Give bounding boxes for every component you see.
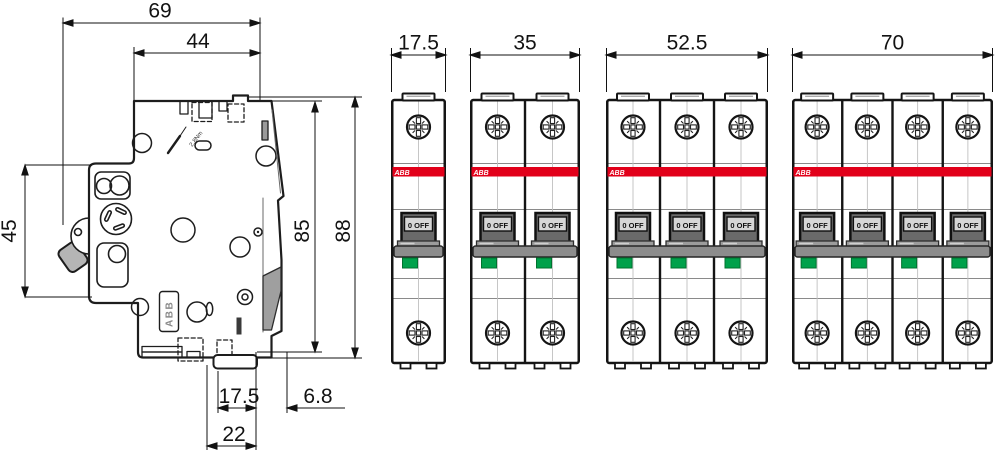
toggle-switch[interactable]: 0 OFF [846, 213, 888, 249]
dimension-label: 35 [513, 32, 536, 55]
terminal-screw [730, 116, 753, 139]
screw-slot [422, 125, 428, 129]
screw-slot [678, 331, 684, 335]
toggle-switch[interactable]: 0 OFF [532, 213, 574, 249]
terminal-screw [622, 116, 645, 139]
toggle-switch[interactable]: 0 OFF [477, 213, 519, 249]
screw-slot [959, 331, 965, 335]
breaker-front-1pole: 17.5ABB0 OFF [391, 32, 446, 369]
bottom-foot [976, 363, 986, 369]
toggle-state-label: 0 OFF [857, 221, 879, 230]
screw-slot [685, 331, 689, 335]
dim-unit-width: 35 [470, 32, 580, 93]
bottom-foot [875, 363, 885, 369]
toggle-switch[interactable]: 0 OFF [897, 213, 939, 249]
terminal-screw [486, 116, 509, 139]
side-view-drawing: 2.8Nm ABB [57, 96, 284, 369]
screw-slot [488, 125, 494, 129]
screw-slot [971, 331, 977, 335]
top-mounting-tab [617, 94, 649, 101]
toggle-state-label: 0 OFF [957, 221, 979, 230]
toggle-switch[interactable]: 0 OFF [398, 213, 440, 249]
screw-slot [543, 125, 549, 129]
screw-slot [550, 125, 554, 129]
bottom-foot [401, 363, 411, 369]
top-mounting-tab [902, 94, 934, 101]
dimension-label: 70 [881, 32, 904, 55]
screw-slot [685, 125, 689, 129]
screw-slot [501, 125, 507, 129]
screw-slot [631, 331, 635, 335]
screw-slot [739, 131, 743, 137]
top-mounting-tab [952, 94, 984, 101]
screw-slot [685, 337, 689, 343]
screw-slot [543, 331, 549, 335]
screw-slot [416, 337, 420, 343]
status-indicator [482, 258, 497, 268]
screw-slot [631, 118, 635, 124]
screw-slot [550, 324, 554, 330]
screw-slot [739, 331, 743, 335]
din-clip-tab [214, 355, 258, 369]
terminal-screw [541, 322, 564, 345]
screw-slot [550, 331, 554, 335]
screw-slot [624, 331, 630, 335]
status-indicator [952, 258, 967, 268]
dim-upper-width: 44 [134, 30, 260, 100]
toggle-switch[interactable]: 0 OFF [796, 213, 838, 249]
screw-slot [916, 118, 920, 124]
screw-slot [739, 324, 743, 330]
terminal-screw [486, 322, 509, 345]
screw-slot [908, 331, 914, 335]
abb-brand-band [608, 167, 767, 177]
side-brand-label: ABB [165, 301, 176, 327]
top-mounting-tab [725, 94, 757, 101]
dim-label-clip-outer: 22 [222, 423, 245, 446]
bottom-foot [900, 363, 910, 369]
bottom-foot [695, 363, 705, 369]
terminal-screw [956, 116, 979, 139]
terminal-screw [676, 116, 699, 139]
screw-slot [416, 331, 420, 335]
screw-slot [631, 125, 635, 129]
toggle-switch[interactable]: 0 OFF [947, 213, 989, 249]
screw-slot [966, 118, 970, 124]
breaker-front-4pole: 70ABB0 OFF0 OFF0 OFF0 OFF [792, 32, 993, 369]
abb-brand-label: ABB [609, 170, 625, 177]
screw-slot [921, 125, 927, 129]
terminal-screw [806, 116, 829, 139]
screw-slot [959, 125, 965, 129]
screw-slot [495, 324, 499, 330]
screw-slot [732, 331, 738, 335]
status-indicator [671, 258, 686, 268]
screw-slot [966, 125, 970, 129]
bottom-foot [825, 363, 835, 369]
lever-pivot-screw [75, 229, 82, 236]
dim-label-overall-width: 69 [148, 0, 171, 23]
screw-slot [745, 331, 751, 335]
screw-slot [858, 331, 864, 335]
top-mounting-tab [851, 94, 883, 101]
dim-label-overall-height: 88 [332, 219, 355, 242]
toggle-switch[interactable]: 0 OFF [666, 213, 708, 249]
screw-slot [732, 125, 738, 129]
top-mounting-tab [801, 94, 833, 101]
dim-label-clip-inner: 17.5 [219, 385, 260, 408]
screw-slot [550, 337, 554, 343]
front-views: 17.5ABB0 OFF35ABB0 OFF0 OFF52.5ABB0 OFF0… [391, 32, 993, 369]
screw-slot [916, 125, 920, 129]
bottom-foot [480, 363, 490, 369]
screw-slot [739, 118, 743, 124]
bottom-foot [799, 363, 809, 369]
screw-slot [865, 337, 869, 343]
screw-slot [631, 131, 635, 137]
screw-slot [550, 118, 554, 124]
screw-slot [808, 125, 814, 129]
bottom-foot [506, 363, 516, 369]
toggle-state-label: 0 OFF [730, 221, 752, 230]
toggle-state-label: 0 OFF [907, 221, 929, 230]
screw-slot [495, 118, 499, 124]
screw-slot [416, 118, 420, 124]
screw-slot [921, 331, 927, 335]
terminal-screw [856, 322, 879, 345]
breaker-front-3pole: 52.5ABB0 OFF0 OFF0 OFF [606, 32, 768, 369]
terminal-screw [856, 116, 879, 139]
top-mounting-tab [403, 94, 435, 101]
screw-slot [422, 331, 428, 335]
bottom-foot [427, 363, 437, 369]
status-indicator [617, 258, 632, 268]
screw-slot [815, 331, 819, 335]
screw-slot [865, 331, 869, 335]
status-indicator [403, 258, 418, 268]
screw-slot [409, 331, 415, 335]
handle-bar[interactable] [394, 246, 443, 257]
abb-brand-label: ABB [394, 170, 410, 177]
terminal-screw [676, 322, 699, 345]
bottom-foot [950, 363, 960, 369]
screw-slot [495, 337, 499, 343]
screw-slot [416, 131, 420, 137]
toggle-switch[interactable]: 0 OFF [720, 213, 762, 249]
dim-label-front-height: 45 [0, 219, 21, 242]
toggle-state-label: 0 OFF [806, 221, 828, 230]
screw-slot [416, 324, 420, 330]
terminal-screw [906, 322, 929, 345]
screw-slot [488, 331, 494, 335]
screw-slot [966, 324, 970, 330]
screw-slot [409, 125, 415, 129]
screw-slot [865, 131, 869, 137]
status-indicator [801, 258, 816, 268]
screw-slot [637, 331, 643, 335]
dim-clip-offset: 6.8 [287, 352, 345, 413]
screw-slot [916, 324, 920, 330]
screw-slot [815, 131, 819, 137]
screw-slot [865, 125, 869, 129]
dim-label-upper-width: 44 [186, 30, 210, 53]
screw-slot [871, 125, 877, 129]
toggle-state-label: 0 OFF [408, 221, 430, 230]
handle-bar[interactable] [609, 246, 765, 257]
handle-bar[interactable] [473, 246, 577, 257]
screw-slot [495, 125, 499, 129]
screw-slot [815, 337, 819, 343]
terminal-screw [906, 116, 929, 139]
toggle-switch[interactable]: 0 OFF [612, 213, 654, 249]
screw-slot [815, 118, 819, 124]
abb-brand-band [794, 167, 992, 177]
screw-slot [631, 324, 635, 330]
status-indicator [725, 258, 740, 268]
toggle-state-label: 0 OFF [542, 221, 564, 230]
status-indicator [902, 258, 917, 268]
screw-slot [556, 125, 562, 129]
terminal-screw [622, 322, 645, 345]
dimension-label: 52.5 [667, 32, 708, 55]
dim-label-body-height: 85 [291, 219, 314, 242]
terminal-screw [407, 322, 430, 345]
screw-slot [739, 337, 743, 343]
screw-slot [908, 125, 914, 129]
top-mounting-tab [537, 94, 569, 101]
dim-unit-width: 17.5 [391, 32, 446, 93]
bottom-foot [926, 363, 936, 369]
screw-slot [865, 118, 869, 124]
screw-slot [815, 324, 819, 330]
screw-slot [691, 331, 697, 335]
bottom-foot [749, 363, 759, 369]
screw-slot [821, 125, 827, 129]
dim-label-clip-offset: 6.8 [303, 385, 332, 408]
screw-slot [691, 125, 697, 129]
rivet-pin-dot [257, 231, 259, 233]
top-mounting-tab [671, 94, 703, 101]
screw-slot [745, 125, 751, 129]
screw-slot [631, 337, 635, 343]
screw-slot [971, 125, 977, 129]
screw-slot [916, 337, 920, 343]
dimension-label: 17.5 [398, 32, 439, 55]
screw-slot [495, 331, 499, 335]
toggle-state-label: 0 OFF [676, 221, 698, 230]
breaker-front-2pole: 35ABB0 OFF0 OFF [470, 32, 580, 369]
screw-slot [685, 118, 689, 124]
screw-slot [550, 131, 554, 137]
screw-slot [556, 331, 562, 335]
screw-slot [815, 125, 819, 129]
terminal-screw [730, 322, 753, 345]
bottom-foot [723, 363, 733, 369]
bottom-foot [615, 363, 625, 369]
terminal-screw [541, 116, 564, 139]
screw-slot [685, 131, 689, 137]
dark-bar [237, 318, 242, 335]
screw-slot [624, 125, 630, 129]
screw-slot [966, 131, 970, 137]
screw-slot [966, 337, 970, 343]
bottom-foot [669, 363, 679, 369]
screw-slot [808, 331, 814, 335]
top-mounting-tab [482, 94, 514, 101]
screw-slot [916, 131, 920, 137]
terminal-screw [806, 322, 829, 345]
screw-slot [916, 331, 920, 335]
abb-brand-label: ABB [795, 170, 811, 177]
handle-bar[interactable] [795, 246, 990, 257]
screw-slot [966, 331, 970, 335]
status-indicator [851, 258, 866, 268]
bottom-foot [535, 363, 545, 369]
screw-slot [501, 331, 507, 335]
dim-unit-width: 52.5 [606, 32, 768, 93]
bottom-foot [561, 363, 571, 369]
screw-slot [871, 331, 877, 335]
terminal-screw [956, 322, 979, 345]
screw-slot [858, 125, 864, 129]
screw-slot [821, 331, 827, 335]
screw-slot [637, 125, 643, 129]
toggle-state-label: 0 OFF [487, 221, 509, 230]
bottom-foot [641, 363, 651, 369]
side-latch-block [262, 121, 268, 140]
bottom-foot [849, 363, 859, 369]
drawing-svg: 2.8Nm ABB 69 44 45 [0, 0, 998, 452]
screw-slot [495, 131, 499, 137]
breaker-side-outline [89, 96, 284, 358]
screw-slot [865, 324, 869, 330]
screw-slot [739, 125, 743, 129]
status-indicator [537, 258, 552, 268]
screw-slot [416, 125, 420, 129]
terminal-screw [407, 116, 430, 139]
screw-slot [678, 125, 684, 129]
dim-unit-width: 70 [792, 32, 993, 93]
dimension-drawing-canvas: 2.8Nm ABB 69 44 45 [0, 0, 998, 452]
toggle-state-label: 0 OFF [622, 221, 644, 230]
abb-brand-label: ABB [473, 170, 489, 177]
screw-slot [685, 324, 689, 330]
